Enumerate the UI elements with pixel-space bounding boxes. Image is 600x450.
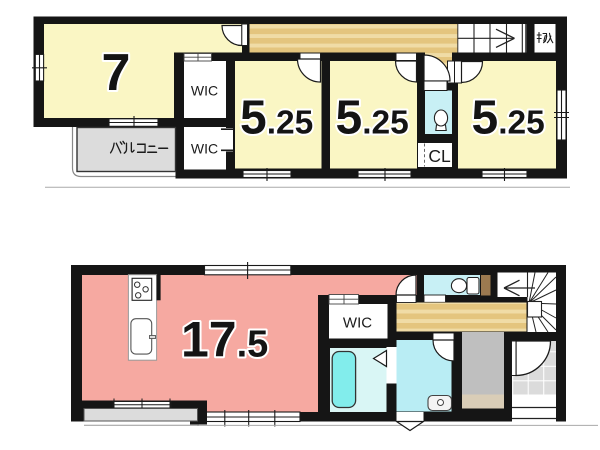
svg-text:WIC: WIC	[191, 83, 218, 99]
svg-text:WIC: WIC	[343, 315, 372, 332]
svg-text:WIC: WIC	[191, 141, 218, 157]
svg-text:7: 7	[102, 44, 131, 102]
svg-text:CL: CL	[428, 146, 451, 166]
